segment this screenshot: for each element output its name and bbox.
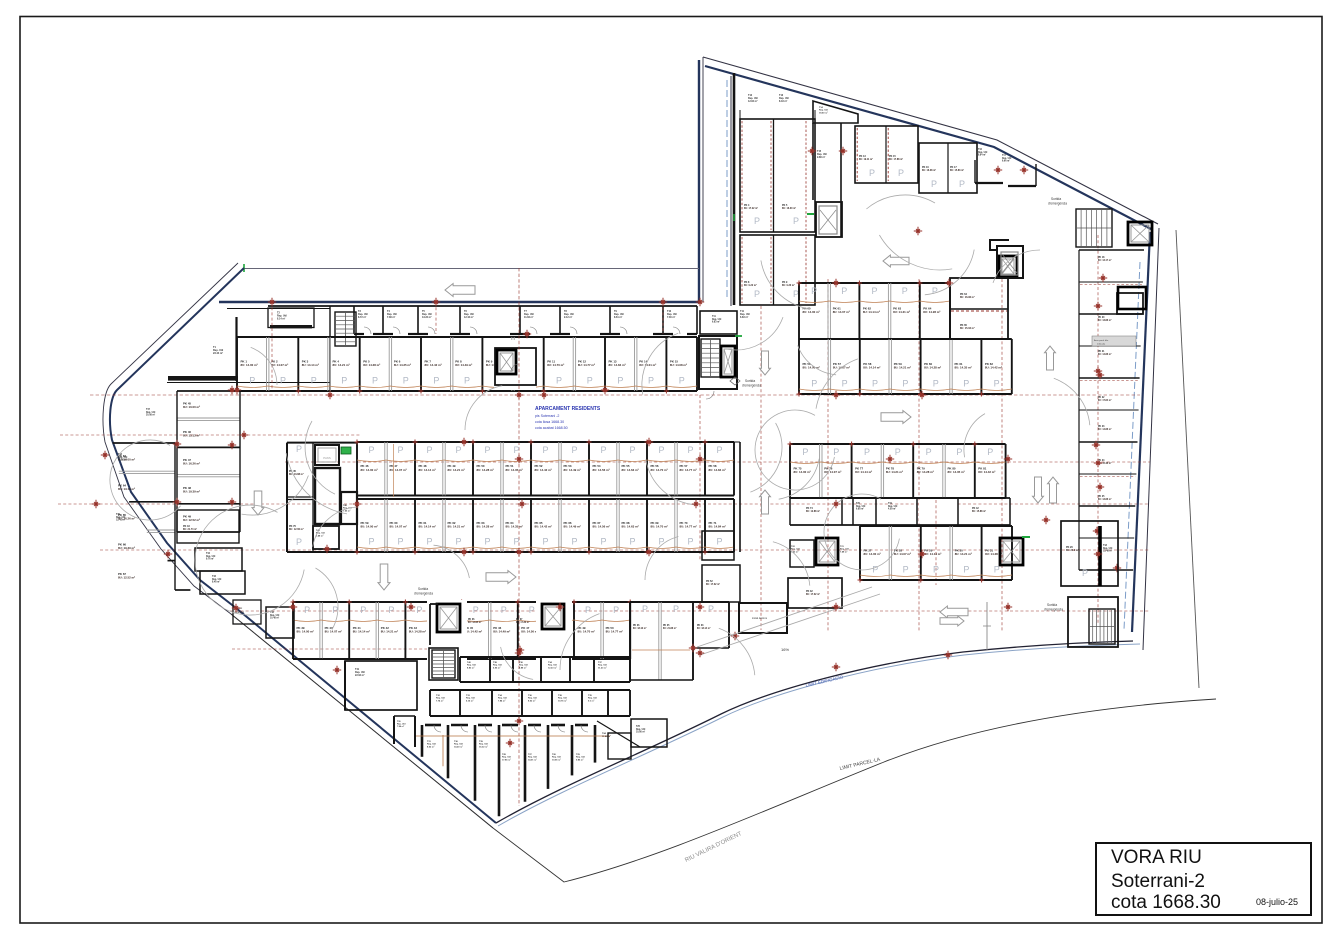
svg-text:8U: 14.35 m²: 8U: 14.35 m² xyxy=(948,470,965,474)
svg-text:P: P xyxy=(802,447,808,457)
svg-text:cota acabat 1668.50: cota acabat 1668.50 xyxy=(535,426,568,430)
svg-text:Rep. Util: Rep. Util xyxy=(528,697,537,700)
svg-text:8U: 14.00 m²: 8U: 14.00 m² xyxy=(864,552,881,556)
svg-text:PK 36: PK 36 xyxy=(468,619,475,621)
svg-text:Rep. Util: Rep. Util xyxy=(498,697,507,700)
svg-text:P: P xyxy=(629,537,635,547)
svg-text:8U: 14.77 m²: 8U: 14.77 m² xyxy=(680,468,697,472)
svg-text:Rep. Util: Rep. Util xyxy=(856,505,866,508)
svg-text:P: P xyxy=(484,537,490,547)
svg-text:P: P xyxy=(529,605,535,615)
svg-text:11.84 m²: 11.84 m² xyxy=(524,315,534,319)
svg-text:8U: 14.14 m²: 8U: 14.14 m² xyxy=(924,552,941,556)
svg-text:14.01 m²: 14.01 m² xyxy=(528,758,537,761)
svg-text:pis Soterrani -2: pis Soterrani -2 xyxy=(535,414,559,418)
svg-text:P: P xyxy=(811,286,817,296)
svg-text:P: P xyxy=(368,537,374,547)
svg-text:d'emergència: d'emergència xyxy=(1044,608,1063,612)
svg-text:cota 1668.30: cota 1668.30 xyxy=(1111,892,1221,913)
svg-text:Sortida: Sortida xyxy=(1051,197,1061,201)
svg-text:8U: 12.52 m²: 8U: 12.52 m² xyxy=(183,518,200,522)
svg-text:8U: 14.63 m²: 8U: 14.63 m² xyxy=(622,468,639,472)
svg-text:8U: 14.14 m²: 8U: 14.14 m² xyxy=(855,470,872,474)
svg-text:8U: 14.42 m²: 8U: 14.42 m² xyxy=(425,363,442,367)
svg-text:Rep. Util: Rep. Util xyxy=(548,664,557,667)
svg-text:P: P xyxy=(869,168,875,178)
svg-text:Rep. Util: Rep. Util xyxy=(588,697,597,700)
svg-text:23.44 m²: 23.44 m² xyxy=(213,351,223,355)
svg-text:Rep. Util: Rep. Util xyxy=(819,109,828,112)
svg-text:8U: 15.88 m²: 8U: 15.88 m² xyxy=(972,509,986,513)
svg-text:APARCAMENT RESIDENTS: APARCAMENT RESIDENTS xyxy=(535,406,601,412)
svg-text:PK 21: PK 21 xyxy=(1098,351,1105,353)
svg-text:8.02 m²: 8.02 m² xyxy=(427,745,435,748)
svg-text:P: P xyxy=(397,445,403,455)
svg-text:8.72 m²: 8.72 m² xyxy=(358,315,366,319)
svg-text:8.61 m²: 8.61 m² xyxy=(614,315,622,319)
svg-text:Rep. Util: Rep. Util xyxy=(427,743,436,746)
svg-text:8U: 12.52 m²: 8U: 12.52 m² xyxy=(118,575,135,579)
svg-text:PK 35: PK 35 xyxy=(663,625,670,627)
svg-text:8U: 9.30 m²: 8U: 9.30 m² xyxy=(782,283,795,287)
svg-text:P: P xyxy=(388,605,394,615)
svg-text:8U: 14.35 m²: 8U: 14.35 m² xyxy=(394,363,411,367)
svg-text:P: P xyxy=(932,286,938,296)
svg-text:8U: 14.84 m²: 8U: 14.84 m² xyxy=(709,468,726,472)
svg-text:PK 37: PK 37 xyxy=(516,619,523,621)
svg-text:P: P xyxy=(642,604,648,614)
svg-text:9.1 m²: 9.1 m² xyxy=(588,699,595,702)
svg-text:Rep. Util: Rep. Util xyxy=(454,743,463,746)
svg-text:P: P xyxy=(811,379,817,389)
svg-text:8U: 17.32 m²: 8U: 17.32 m² xyxy=(706,582,720,586)
svg-text:d'emergència: d'emergència xyxy=(1048,202,1067,206)
svg-text:8U: 14.07 m²: 8U: 14.07 m² xyxy=(390,525,407,529)
svg-text:16.32 m²: 16.32 m² xyxy=(479,745,488,748)
svg-text:6.83 m²: 6.83 m² xyxy=(740,315,748,319)
svg-text:cota llosa 1668.30: cota llosa 1668.30 xyxy=(535,420,564,424)
svg-text:P: P xyxy=(296,537,302,547)
svg-text:18.60 m²: 18.60 m² xyxy=(819,111,828,114)
svg-text:Rep. Util: Rep. Util xyxy=(598,664,607,667)
svg-text:11.88 m²: 11.88 m² xyxy=(602,735,611,738)
svg-text:P: P xyxy=(933,565,939,575)
svg-text:Soterrani-2: Soterrani-2 xyxy=(1111,871,1205,892)
svg-text:Rep. Util: Rep. Util xyxy=(270,614,280,617)
svg-text:8U: 14.00 m²: 8U: 14.00 m² xyxy=(361,525,378,529)
svg-text:8U: 14.49 m²: 8U: 14.49 m² xyxy=(564,525,581,529)
svg-text:8U: 14.84 m²: 8U: 14.84 m² xyxy=(709,525,726,529)
svg-text:8U: 14.14 m²: 8U: 14.14 m² xyxy=(302,363,319,367)
svg-text:P: P xyxy=(708,604,714,614)
svg-text:12.23 m²: 12.23 m² xyxy=(548,666,557,669)
svg-text:8U: 14.28 m²: 8U: 14.28 m² xyxy=(363,363,380,367)
svg-text:8U: 15.83 m²: 8U: 15.83 m² xyxy=(950,168,964,172)
svg-text:P: P xyxy=(648,376,654,386)
svg-text:P: P xyxy=(842,379,848,389)
svg-text:P: P xyxy=(416,605,422,615)
svg-text:8U: 9.22 m²: 8U: 9.22 m² xyxy=(744,283,757,287)
svg-text:22.62 m²: 22.62 m² xyxy=(355,673,365,677)
svg-text:P: P xyxy=(902,379,908,389)
svg-text:7.30 m²: 7.30 m² xyxy=(667,315,675,319)
svg-text:8U: 17.88 m²: 8U: 17.88 m² xyxy=(889,157,903,161)
svg-text:8U: 14.07 m²: 8U: 14.07 m² xyxy=(325,630,342,634)
svg-text:8U: 14.14 m²: 8U: 14.14 m² xyxy=(353,630,370,634)
svg-text:8U: 14.77 m²: 8U: 14.77 m² xyxy=(606,630,623,634)
svg-text:8U: 14.35 m²: 8U: 14.35 m² xyxy=(955,366,972,370)
svg-text:P: P xyxy=(372,376,378,386)
svg-text:PK 36: PK 36 xyxy=(633,625,640,627)
svg-text:8U: 14.42 m²: 8U: 14.42 m² xyxy=(465,630,482,634)
svg-text:7.86 m²: 7.86 m² xyxy=(397,725,404,728)
svg-text:P: P xyxy=(571,445,577,455)
svg-text:P: P xyxy=(617,376,623,386)
svg-text:P: P xyxy=(368,445,374,455)
svg-text:P: P xyxy=(426,445,432,455)
svg-text:9.88 m²: 9.88 m² xyxy=(817,155,825,159)
svg-text:P: P xyxy=(542,537,548,547)
svg-text:P: P xyxy=(296,444,302,454)
svg-text:PK 18: PK 18 xyxy=(1098,257,1105,259)
svg-text:Rep. Util: Rep. Util xyxy=(978,151,988,154)
svg-text:8.88 m²: 8.88 m² xyxy=(519,666,527,669)
svg-text:8U: 19.39 m²: 8U: 19.39 m² xyxy=(183,490,200,494)
svg-text:8U: 14.35 m²: 8U: 14.35 m² xyxy=(506,525,523,529)
svg-text:Sortida: Sortida xyxy=(745,379,755,383)
svg-text:8U: 14.07 m²: 8U: 14.07 m² xyxy=(824,470,841,474)
svg-text:P: P xyxy=(658,445,664,455)
svg-text:8U: 14.00 m²: 8U: 14.00 m² xyxy=(361,468,378,472)
svg-text:PK 20: PK 20 xyxy=(1098,317,1105,319)
svg-text:Rep. Util: Rep. Util xyxy=(576,756,585,759)
svg-text:Rep. Util: Rep. Util xyxy=(467,664,476,667)
svg-text:8U: 14.28 m²: 8U: 14.28 m² xyxy=(477,525,494,529)
svg-text:17.85 m²: 17.85 m² xyxy=(502,758,511,761)
svg-text:8U: 14.14 m²: 8U: 14.14 m² xyxy=(863,310,880,314)
svg-text:P: P xyxy=(841,286,847,296)
svg-text:9.12 m²: 9.12 m² xyxy=(564,315,572,319)
svg-text:Rep. Util: Rep. Util xyxy=(558,697,567,700)
svg-text:10.76 m²: 10.76 m² xyxy=(558,699,567,702)
svg-text:13.22 m²: 13.22 m² xyxy=(422,315,432,319)
svg-text:P: P xyxy=(600,537,606,547)
svg-text:10.96 m²: 10.96 m² xyxy=(552,758,561,761)
svg-text:Rep. Util: Rep. Util xyxy=(397,723,406,726)
svg-text:Rep. Util: Rep. Util xyxy=(712,318,722,321)
svg-text:8U: 14.21 m²: 8U: 14.21 m² xyxy=(955,552,972,556)
svg-text:P: P xyxy=(673,604,679,614)
svg-text:P: P xyxy=(426,537,432,547)
svg-text:P: P xyxy=(931,179,937,189)
svg-text:Rep. Util: Rep. Util xyxy=(118,456,128,459)
svg-text:P: P xyxy=(556,376,562,386)
svg-text:P: P xyxy=(871,286,877,296)
svg-text:P: P xyxy=(687,537,693,547)
svg-text:Rep. Util: Rep. Util xyxy=(1002,157,1012,160)
svg-text:8U: 14.28 m²: 8U: 14.28 m² xyxy=(917,470,934,474)
svg-text:11.23 m²: 11.23 m² xyxy=(598,666,607,669)
svg-text:8U: 14.70 m²: 8U: 14.70 m² xyxy=(578,630,595,634)
svg-text:P: P xyxy=(895,447,901,457)
svg-text:P: P xyxy=(585,605,591,615)
svg-text:P: P xyxy=(613,605,619,615)
svg-text:8U: 14.28 m²: 8U: 14.28 m² xyxy=(923,310,940,314)
svg-text:8U: 14.07 m²: 8U: 14.07 m² xyxy=(833,310,850,314)
svg-text:P: P xyxy=(754,289,760,299)
svg-text:d'emergència: d'emergència xyxy=(414,592,433,596)
svg-text:9.85 m²: 9.85 m² xyxy=(576,758,584,761)
svg-text:P: P xyxy=(902,286,908,296)
svg-text:5.48 m²: 5.48 m² xyxy=(316,534,324,537)
svg-text:8U: 14.42 m²: 8U: 14.42 m² xyxy=(978,470,995,474)
svg-text:8U: 14.07 m²: 8U: 14.07 m² xyxy=(271,363,288,367)
svg-text:PANS: PANS xyxy=(323,456,331,460)
svg-text:6.95 m²: 6.95 m² xyxy=(493,666,501,669)
svg-text:P: P xyxy=(687,445,693,455)
svg-text:8U: 13.13 m²: 8U: 13.13 m² xyxy=(183,433,200,437)
svg-text:8U: 14.00 m²: 8U: 14.00 m² xyxy=(297,630,314,634)
svg-text:Rep. Util: Rep. Util xyxy=(206,555,216,558)
svg-text:PK 25: PK 25 xyxy=(1098,496,1105,498)
svg-text:8U: 16.38 m²: 8U: 16.38 m² xyxy=(922,168,936,172)
svg-text:Rep. Util: Rep. Util xyxy=(552,756,561,759)
svg-text:8U: 14.00 m²: 8U: 14.00 m² xyxy=(241,363,258,367)
svg-text:8U: 14.14 m²: 8U: 14.14 m² xyxy=(419,468,436,472)
svg-text:P: P xyxy=(341,376,347,386)
svg-text:P: P xyxy=(464,376,470,386)
svg-text:7.38 m²: 7.38 m² xyxy=(387,315,395,319)
svg-text:8U: 14.84 m²: 8U: 14.84 m² xyxy=(609,363,626,367)
svg-text:P: P xyxy=(360,605,366,615)
svg-text:7.84 m²: 7.84 m² xyxy=(498,699,506,702)
svg-text:Rep. Util: Rep. Util xyxy=(502,756,511,759)
svg-text:8U: 14.21 m²: 8U: 14.21 m² xyxy=(893,310,910,314)
svg-text:8U: 20.2 m²: 8U: 20.2 m² xyxy=(1066,548,1079,552)
svg-text:8U: 14.28 m²: 8U: 14.28 m² xyxy=(924,366,941,370)
svg-text:P: P xyxy=(994,379,1000,389)
svg-text:8U: 14.77 m²: 8U: 14.77 m² xyxy=(680,525,697,529)
svg-text:8U: 14.00 m²: 8U: 14.00 m² xyxy=(794,470,811,474)
svg-text:indicada: indicada xyxy=(1097,344,1106,346)
svg-text:Rep. Util: Rep. Util xyxy=(466,697,475,700)
svg-text:8U: 14.07 m²: 8U: 14.07 m² xyxy=(390,468,407,472)
svg-text:8U: 14.21 m²: 8U: 14.21 m² xyxy=(894,366,911,370)
svg-text:8U: 14.42 m²: 8U: 14.42 m² xyxy=(535,525,552,529)
svg-text:8U: 14.21 m²: 8U: 14.21 m² xyxy=(448,525,465,529)
svg-text:P: P xyxy=(304,605,310,615)
svg-text:P: P xyxy=(793,216,799,226)
svg-text:P: P xyxy=(679,376,685,386)
svg-text:P: P xyxy=(926,447,932,457)
svg-text:Rep. Util: Rep. Util xyxy=(116,516,126,519)
svg-text:P: P xyxy=(501,605,507,615)
svg-text:P: P xyxy=(872,565,878,575)
svg-text:8U: 14.70 m²: 8U: 14.70 m² xyxy=(651,525,668,529)
svg-text:8U: 14.49 m²: 8U: 14.49 m² xyxy=(564,468,581,472)
svg-text:P: P xyxy=(473,605,479,615)
svg-text:P: P xyxy=(455,537,461,547)
svg-text:8U: 14.21 m²: 8U: 14.21 m² xyxy=(333,363,350,367)
svg-text:08-julio-25: 08-julio-25 xyxy=(1256,897,1298,907)
svg-text:P: P xyxy=(987,447,993,457)
svg-text:P: P xyxy=(397,537,403,547)
svg-text:Rep. Util: Rep. Util xyxy=(840,548,849,551)
svg-text:12.84 m²: 12.84 m² xyxy=(748,99,758,103)
svg-text:Sortida: Sortida xyxy=(1047,603,1057,607)
svg-text:PK 22: PK 22 xyxy=(1098,397,1105,399)
svg-text:8U: 14.42 m²: 8U: 14.42 m² xyxy=(985,366,1002,370)
svg-text:P: P xyxy=(833,447,839,457)
svg-text:8U: 15.02 m²: 8U: 15.02 m² xyxy=(960,326,975,330)
svg-text:8U: 14.28 m²: 8U: 14.28 m² xyxy=(477,468,494,472)
svg-text:P: P xyxy=(571,537,577,547)
svg-text:8U: 14.07 m²: 8U: 14.07 m² xyxy=(894,552,911,556)
svg-text:PK 33: PK 33 xyxy=(697,625,704,627)
svg-text:P: P xyxy=(754,216,760,226)
svg-text:Rep. Util: Rep. Util xyxy=(519,664,528,667)
svg-text:P: P xyxy=(249,376,255,386)
svg-text:P: P xyxy=(311,376,317,386)
svg-text:8U: 14.70 m²: 8U: 14.70 m² xyxy=(651,468,668,472)
svg-text:P: P xyxy=(433,376,439,386)
svg-text:Rep. Util: Rep. Util xyxy=(146,411,156,414)
svg-text:6.16 m²: 6.16 m² xyxy=(466,699,474,702)
svg-text:8U: 13.88 m²: 8U: 13.88 m² xyxy=(289,472,304,476)
svg-text:Rep. Util: Rep. Util xyxy=(436,697,445,700)
svg-text:8U: 16.96 m²: 8U: 16.96 m² xyxy=(960,295,975,299)
svg-text:Rep. Util: Rep. Util xyxy=(479,743,488,746)
svg-text:P: P xyxy=(872,379,878,389)
svg-text:8U: 14.56 m²: 8U: 14.56 m² xyxy=(521,630,538,634)
svg-text:8U: 14.21 m²: 8U: 14.21 m² xyxy=(448,468,465,472)
svg-text:P: P xyxy=(1082,568,1088,578)
svg-text:P: P xyxy=(629,445,635,455)
svg-text:8U: 14.14 m²: 8U: 14.14 m² xyxy=(419,525,436,529)
svg-text:instal·lacions: instal·lacions xyxy=(752,616,768,620)
svg-text:8U: 14.14 m²: 8U: 14.14 m² xyxy=(863,366,880,370)
svg-text:PK 23: PK 23 xyxy=(1098,426,1105,428)
svg-text:P: P xyxy=(716,537,722,547)
svg-text:8U: 17.22 m²: 8U: 17.22 m² xyxy=(744,206,758,210)
svg-text:8.43 m²: 8.43 m² xyxy=(779,99,787,103)
svg-text:12.44 m²: 12.44 m² xyxy=(464,315,474,319)
svg-text:8.02 m²: 8.02 m² xyxy=(528,699,536,702)
svg-text:d'emergència: d'emergència xyxy=(742,384,761,388)
svg-text:P: P xyxy=(513,537,519,547)
svg-text:7.48 m²: 7.48 m² xyxy=(840,550,848,553)
svg-text:8U: 17.02 m²: 8U: 17.02 m² xyxy=(806,592,820,596)
svg-text:8U: 14.49 m²: 8U: 14.49 m² xyxy=(455,363,472,367)
svg-text:Rep. Util: Rep. Util xyxy=(888,505,898,508)
svg-text:P: P xyxy=(403,376,409,386)
svg-text:VORA RIU: VORA RIU xyxy=(1111,847,1202,868)
svg-text:P: P xyxy=(280,376,286,386)
svg-text:8U: 12.60 m²: 8U: 12.60 m² xyxy=(289,527,304,531)
svg-text:8U: 14.28 m²: 8U: 14.28 m² xyxy=(409,630,426,634)
svg-text:Sortida: Sortida xyxy=(418,587,428,591)
svg-text:Rep. Util: Rep. Util xyxy=(636,728,646,731)
svg-text:P: P xyxy=(864,447,870,457)
svg-text:8U: 14.21 m²: 8U: 14.21 m² xyxy=(381,630,398,634)
svg-text:8U: 14.42 m²: 8U: 14.42 m² xyxy=(535,468,552,472)
svg-text:8U: 16.30 m²: 8U: 16.30 m² xyxy=(782,206,796,210)
svg-text:8U: 14.35 m²: 8U: 14.35 m² xyxy=(506,468,523,472)
svg-text:16%: 16% xyxy=(781,647,789,652)
svg-text:14.20 m²: 14.20 m² xyxy=(454,745,463,748)
svg-text:8U: 13.13 m²: 8U: 13.13 m² xyxy=(118,487,135,491)
svg-text:Rep. Util: Rep. Util xyxy=(212,578,222,581)
svg-text:8U: 14.56 m²: 8U: 14.56 m² xyxy=(593,468,610,472)
svg-text:P: P xyxy=(716,445,722,455)
svg-text:8U: 14.08 m²: 8U: 14.08 m² xyxy=(670,363,687,367)
svg-text:Rep. Util: Rep. Util xyxy=(528,756,537,759)
svg-text:Rep. Util: Rep. Util xyxy=(493,664,502,667)
svg-text:P: P xyxy=(933,379,939,389)
svg-text:8U: 14.49 m²: 8U: 14.49 m² xyxy=(493,630,510,634)
svg-text:P: P xyxy=(513,445,519,455)
svg-text:Area paral·lela: Area paral·lela xyxy=(1094,339,1109,342)
svg-text:8U: 14.63 m²: 8U: 14.63 m² xyxy=(622,525,639,529)
svg-text:P: P xyxy=(963,379,969,389)
svg-text:8U: 16.26 m²: 8U: 16.26 m² xyxy=(183,462,200,466)
svg-text:P: P xyxy=(956,447,962,457)
svg-text:8U: 19.39 m²: 8U: 19.39 m² xyxy=(118,546,135,550)
svg-text:7.74 m²: 7.74 m² xyxy=(436,699,444,702)
svg-text:P: P xyxy=(484,445,490,455)
svg-text:P: P xyxy=(959,179,965,189)
svg-text:Rep. Util: Rep. Util xyxy=(791,548,800,551)
svg-text:P: P xyxy=(542,445,548,455)
svg-text:8.83 m²: 8.83 m² xyxy=(467,666,475,669)
svg-text:8U: 14.01 m²: 8U: 14.01 m² xyxy=(639,363,656,367)
svg-text:P: P xyxy=(600,445,606,455)
svg-text:8U: 19.11 m²: 8U: 19.11 m² xyxy=(859,157,873,161)
svg-text:8.14 m²: 8.14 m² xyxy=(277,316,285,320)
svg-text:Rep. Util: Rep. Util xyxy=(1103,547,1113,550)
svg-text:8U: 14.77 m²: 8U: 14.77 m² xyxy=(578,363,595,367)
svg-text:P: P xyxy=(903,565,909,575)
svg-text:P: P xyxy=(587,376,593,386)
svg-text:8U: 14.21 m²: 8U: 14.21 m² xyxy=(886,470,903,474)
svg-text:8U: 14.56 m²: 8U: 14.56 m² xyxy=(593,525,610,529)
svg-text:8U: 10.00 m²: 8U: 10.00 m² xyxy=(183,405,200,409)
svg-text:8U: 14.00 m²: 8U: 14.00 m² xyxy=(803,310,820,314)
svg-text:P: P xyxy=(898,168,904,178)
svg-text:P: P xyxy=(455,445,461,455)
svg-text:P: P xyxy=(963,565,969,575)
svg-text:8U: 12.88 m²: 8U: 12.88 m² xyxy=(806,509,820,513)
svg-text:8U: 21.74 m²: 8U: 21.74 m² xyxy=(183,527,197,531)
svg-text:8U: 14.70 m²: 8U: 14.70 m² xyxy=(547,363,564,367)
